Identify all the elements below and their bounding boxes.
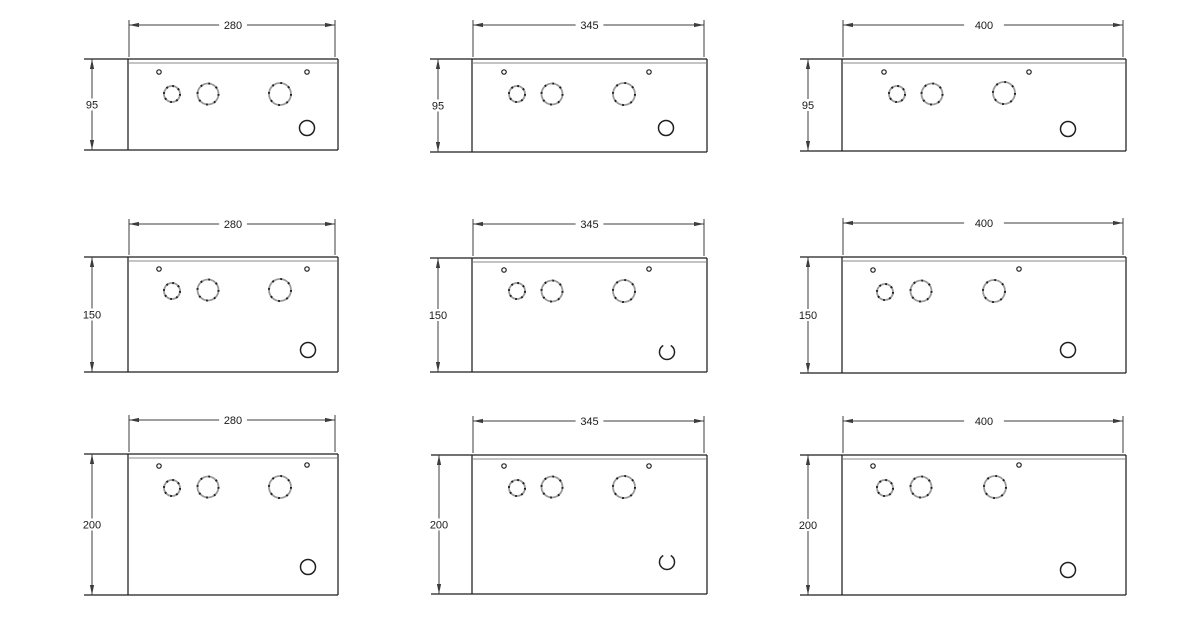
dimension-arrow-down xyxy=(90,140,94,150)
knockout-hole-ring xyxy=(613,476,635,498)
knockout-hole-ring xyxy=(509,283,525,299)
panel-280x95: 28095 xyxy=(83,19,338,150)
aux-hole xyxy=(301,343,316,358)
knockout-hole-ring xyxy=(983,280,1005,302)
height-dimension-value: 200 xyxy=(430,519,448,531)
knockout-hole-ring xyxy=(509,480,525,496)
height-dimension-value: 150 xyxy=(799,310,817,322)
height-dimension-value: 200 xyxy=(799,520,817,532)
dimension-arrow-up xyxy=(90,454,94,464)
dimension-arrow-down xyxy=(806,141,810,151)
width-dimension-value: 345 xyxy=(580,416,598,428)
width-dimension-value: 345 xyxy=(580,219,598,231)
aux-hole xyxy=(301,560,316,575)
screw-hole xyxy=(1017,267,1021,271)
screw-hole xyxy=(305,267,309,271)
panel-400x95: 40095 xyxy=(799,19,1126,151)
panel-280x150: 280150 xyxy=(80,218,338,372)
dimension-arrow-left xyxy=(129,23,139,27)
height-dimension-value: 150 xyxy=(429,310,447,322)
panel-400x200: 400200 xyxy=(796,415,1126,595)
screw-hole xyxy=(157,70,161,74)
screw-hole xyxy=(502,268,506,272)
width-dimension-value: 345 xyxy=(580,20,598,32)
height-dimension-value: 95 xyxy=(432,100,444,112)
dimension-arrow-right xyxy=(1113,221,1123,225)
width-dimension-value: 280 xyxy=(224,20,242,32)
dimension-arrow-down xyxy=(437,584,441,594)
knockout-hole-ring xyxy=(889,86,905,102)
dimension-arrow-up xyxy=(436,258,440,268)
screw-hole xyxy=(647,464,651,468)
width-dimension-value: 280 xyxy=(224,219,242,231)
dimension-arrow-up xyxy=(806,257,810,267)
enclosure-dimension-drawing: 2809534595400952801503451504001502802003… xyxy=(0,0,1200,633)
dimension-arrow-left xyxy=(843,23,853,27)
aux-hole xyxy=(1061,563,1076,578)
dimension-arrow-up xyxy=(806,455,810,465)
knockout-hole-ring xyxy=(164,86,180,102)
screw-hole xyxy=(882,70,886,74)
dimension-arrow-up xyxy=(90,257,94,267)
knockout-hole-ring xyxy=(613,280,635,302)
knockout-hole-ring xyxy=(911,281,932,302)
screw-hole xyxy=(647,267,651,271)
dimension-arrow-right xyxy=(325,418,335,422)
height-dimension-value: 95 xyxy=(86,99,98,111)
height-dimension-value: 150 xyxy=(83,309,101,321)
knockout-hole-ring xyxy=(542,84,563,105)
dimension-arrow-left xyxy=(473,222,483,226)
dimension-arrow-down xyxy=(806,363,810,373)
knockout-hole-ring xyxy=(198,84,219,105)
dimension-arrow-up xyxy=(806,59,810,69)
screw-hole xyxy=(305,463,309,467)
dimension-arrow-down xyxy=(436,362,440,372)
dimension-arrow-left xyxy=(843,221,853,225)
panel-400x150: 400150 xyxy=(796,217,1126,373)
knockout-hole-ring xyxy=(613,83,635,105)
height-dimension-value: 95 xyxy=(802,100,814,112)
knockout-hole-ring xyxy=(269,279,291,301)
knockout-hole-ring xyxy=(542,477,563,498)
screw-hole xyxy=(1027,70,1031,74)
aux-hole xyxy=(659,121,674,136)
dimension-arrow-down xyxy=(90,585,94,595)
screw-hole xyxy=(502,70,506,74)
height-dimension-value: 200 xyxy=(83,519,101,531)
dimension-arrow-right xyxy=(694,23,704,27)
aux-hole-gapped xyxy=(659,346,674,360)
width-dimension-value: 400 xyxy=(975,416,993,428)
width-dimension-value: 400 xyxy=(975,20,993,32)
dimension-arrow-right xyxy=(694,419,704,423)
dimension-arrow-up xyxy=(90,59,94,69)
panel-280x200: 280200 xyxy=(80,414,338,595)
aux-hole xyxy=(1061,122,1076,137)
dimension-arrow-down xyxy=(90,362,94,372)
width-dimension-value: 400 xyxy=(975,218,993,230)
dimension-arrow-right xyxy=(1113,23,1123,27)
knockout-hole-ring xyxy=(164,283,180,299)
knockout-hole-ring xyxy=(198,477,219,498)
knockout-hole-ring xyxy=(922,84,943,105)
knockout-hole-ring xyxy=(542,281,563,302)
dimension-arrow-right xyxy=(1113,419,1123,423)
dimension-arrow-left xyxy=(129,418,139,422)
width-dimension-value: 280 xyxy=(224,415,242,427)
dimension-arrow-up xyxy=(436,59,440,69)
dimension-arrow-up xyxy=(437,455,441,465)
panel-345x200: 345200 xyxy=(427,415,707,594)
dimension-arrow-left xyxy=(129,222,139,226)
knockout-hole-ring xyxy=(198,280,219,301)
screw-hole xyxy=(305,70,309,74)
dimension-arrow-right xyxy=(325,23,335,27)
knockout-hole-ring xyxy=(509,86,525,102)
knockout-hole-ring xyxy=(911,477,932,498)
knockout-hole-ring xyxy=(269,476,291,498)
screw-hole xyxy=(871,464,875,468)
aux-hole xyxy=(1061,343,1076,358)
dimension-arrow-down xyxy=(806,585,810,595)
dimension-arrow-left xyxy=(843,419,853,423)
dimension-arrow-down xyxy=(436,142,440,152)
aux-hole-gapped xyxy=(660,556,675,570)
panel-345x150: 345150 xyxy=(426,218,707,372)
aux-hole xyxy=(300,121,315,136)
dimension-arrow-left xyxy=(473,419,483,423)
knockout-hole-ring xyxy=(877,284,893,300)
dimension-arrow-right xyxy=(694,222,704,226)
dimension-arrow-left xyxy=(473,23,483,27)
knockout-hole-ring xyxy=(984,476,1006,498)
screw-hole xyxy=(157,464,161,468)
knockout-hole-ring xyxy=(993,82,1015,104)
panel-345x95: 34595 xyxy=(429,19,707,152)
drawing-canvas: 2809534595400952801503451504001502802003… xyxy=(0,0,1200,633)
screw-hole xyxy=(647,70,651,74)
dimension-arrow-right xyxy=(325,222,335,226)
knockout-hole-ring xyxy=(164,480,180,496)
screw-hole xyxy=(1017,463,1021,467)
screw-hole xyxy=(157,267,161,271)
screw-hole xyxy=(502,464,506,468)
knockout-hole-ring xyxy=(877,480,893,496)
screw-hole xyxy=(871,268,875,272)
knockout-hole-ring xyxy=(269,83,291,105)
